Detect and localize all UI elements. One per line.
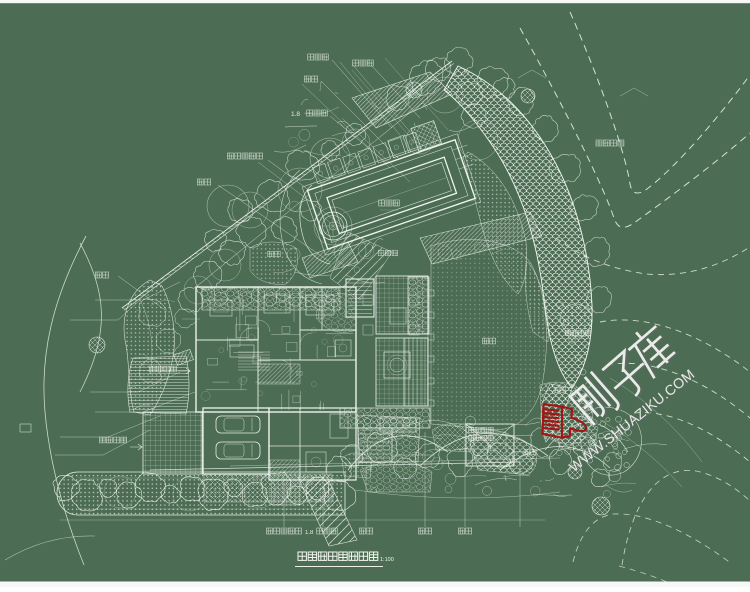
svg-text:1.8: 1.8: [305, 530, 314, 536]
svg-text:1:100: 1:100: [380, 557, 394, 563]
svg-text:1.8: 1.8: [291, 111, 300, 118]
